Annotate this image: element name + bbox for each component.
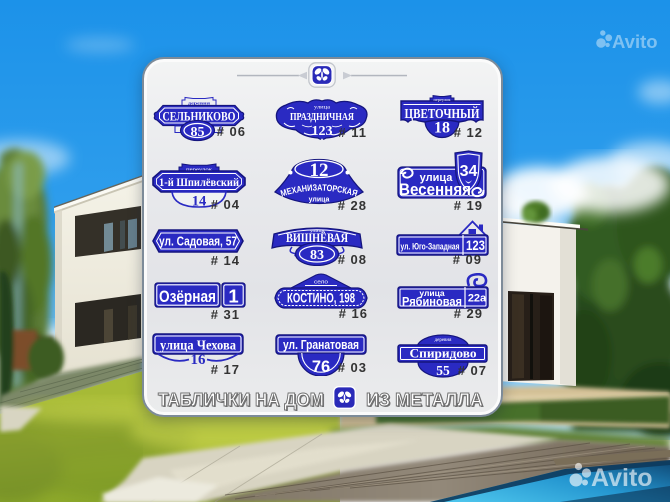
svg-text:34: 34 [460,163,478,180]
svg-text:1-й Шпилёвский: 1-й Шпилёвский [159,177,239,189]
svg-text:Avito: Avito [591,464,653,492]
svg-text:улица: улица [314,105,331,111]
svg-text:ул. Садовая, 57: ул. Садовая, 57 [159,235,237,249]
svg-text:переулок: переулок [434,97,452,102]
svg-text:деревня: деревня [188,101,211,106]
svg-text:ИЗ МЕТАЛЛА: ИЗ МЕТАЛЛА [366,389,483,410]
svg-text:1: 1 [228,286,238,307]
svg-text:деревня: деревня [435,338,453,343]
svg-text:Весенняя: Весенняя [399,180,471,199]
svg-text:ул. Юго-Западная: ул. Юго-Западная [401,242,460,253]
svg-text:12: 12 [310,160,329,181]
svg-text:ул. Гранатовая: ул. Гранатовая [283,338,359,352]
svg-text:Avito: Avito [612,31,658,52]
svg-text:Озёрная: Озёрная [159,288,216,306]
svg-text:ВИШНЁВАЯ: ВИШНЁВАЯ [286,231,348,245]
svg-text:123: 123 [466,238,485,253]
svg-text:Спиридово: Спиридово [410,346,477,361]
svg-text:село: село [314,280,328,286]
svg-text:ТАБЛИЧКИ НА ДОМ: ТАБЛИЧКИ НА ДОМ [158,389,324,410]
svg-text:22а: 22а [468,293,487,305]
svg-text:ПРАЗДНИЧНАЯ: ПРАЗДНИЧНАЯ [290,112,354,123]
svg-text:КОСТИНО, 198: КОСТИНО, 198 [287,291,355,306]
